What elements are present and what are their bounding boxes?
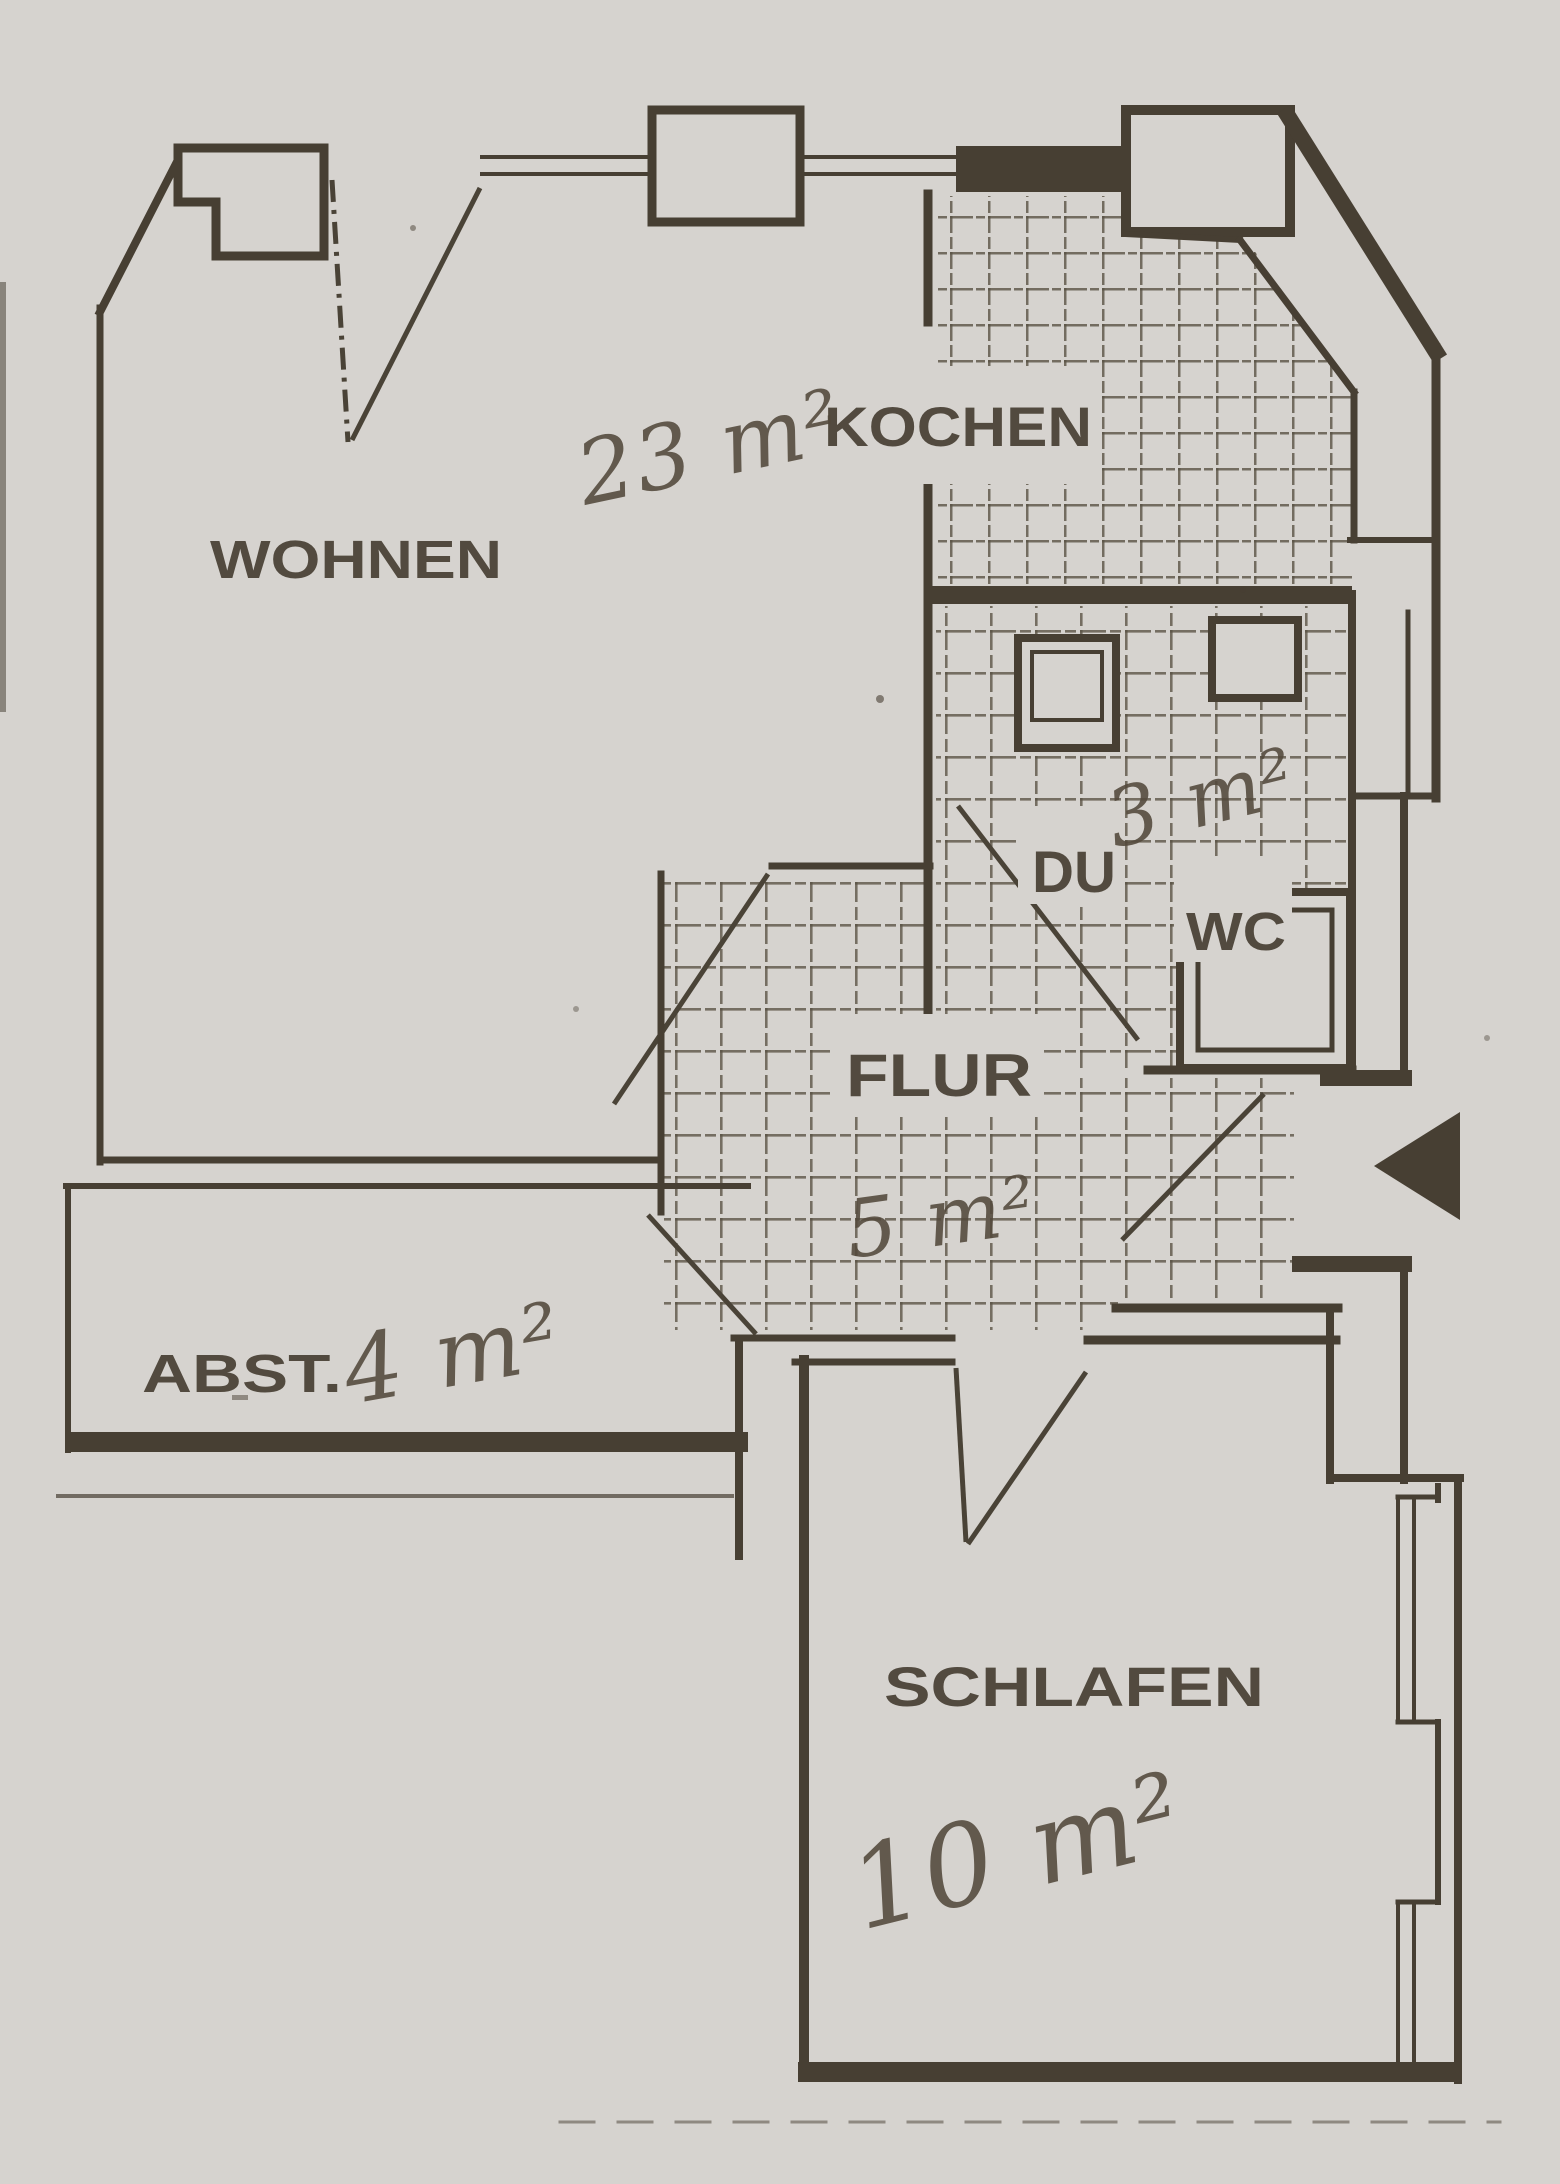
abst-south-wall (66, 1432, 748, 1452)
entry-door-stub-bottom (1292, 1256, 1412, 1272)
wc-fixture (1212, 620, 1298, 698)
kochen-label: KOCHEN (824, 395, 1092, 458)
kochen-south-wall (932, 586, 1352, 604)
scan-edge-artifact (0, 282, 6, 712)
wohnen-label: WOHNEN (210, 530, 502, 590)
floor-plan-drawing: WOHNEN KOCHEN DU WC FLUR ABST. SCHLAFEN … (0, 0, 1560, 2184)
schlafen-label: SCHLAFEN (884, 1655, 1264, 1718)
schlafen-south-wall (798, 2062, 1462, 2082)
kochen-north-wall (956, 146, 1128, 192)
du-label: DU (1032, 840, 1116, 905)
wc-label: WC (1186, 902, 1286, 962)
corner-block-top-right (1126, 110, 1290, 232)
washbasin-inner (1032, 652, 1102, 720)
entry-door-stub-top (1320, 1070, 1412, 1086)
flur-label: FLUR (846, 1042, 1032, 1109)
window-box-north (652, 110, 800, 222)
scanned-floor-plan-page: WOHNEN KOCHEN DU WC FLUR ABST. SCHLAFEN … (0, 0, 1560, 2184)
